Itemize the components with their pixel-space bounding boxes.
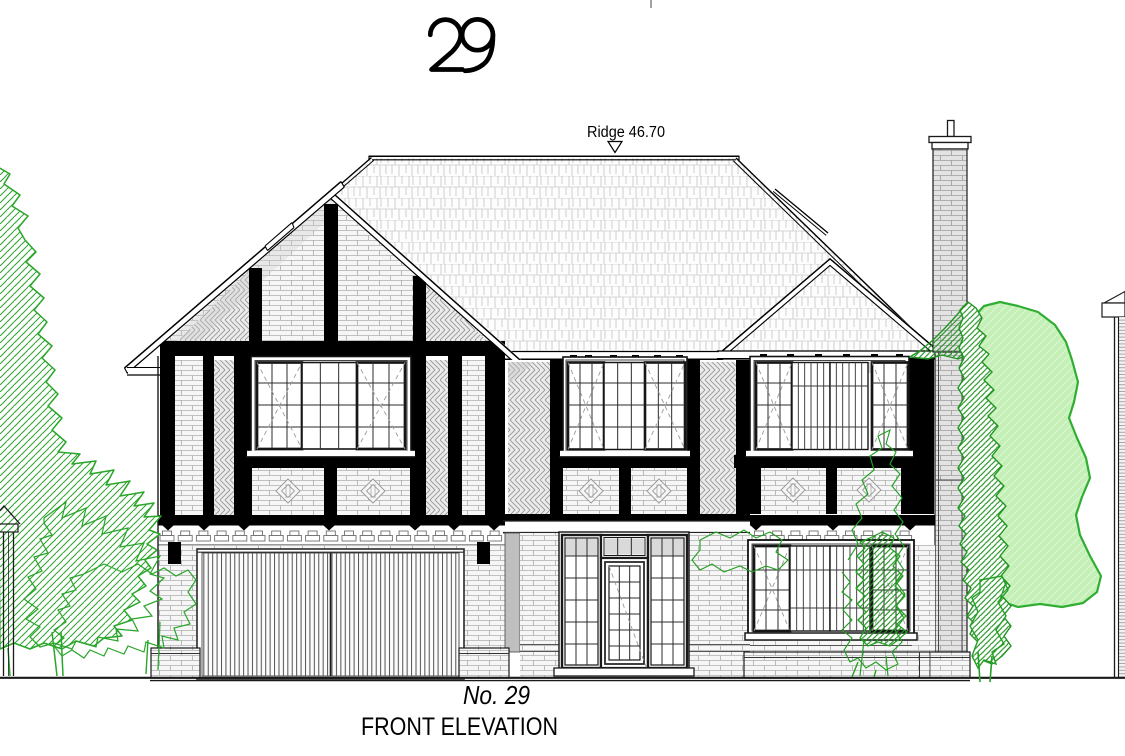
svg-text:Ridge 46.70: Ridge 46.70 <box>587 124 665 141</box>
svg-text:No. 29: No. 29 <box>463 680 530 710</box>
svg-text:FRONT ELEVATION: FRONT ELEVATION <box>361 713 558 741</box>
